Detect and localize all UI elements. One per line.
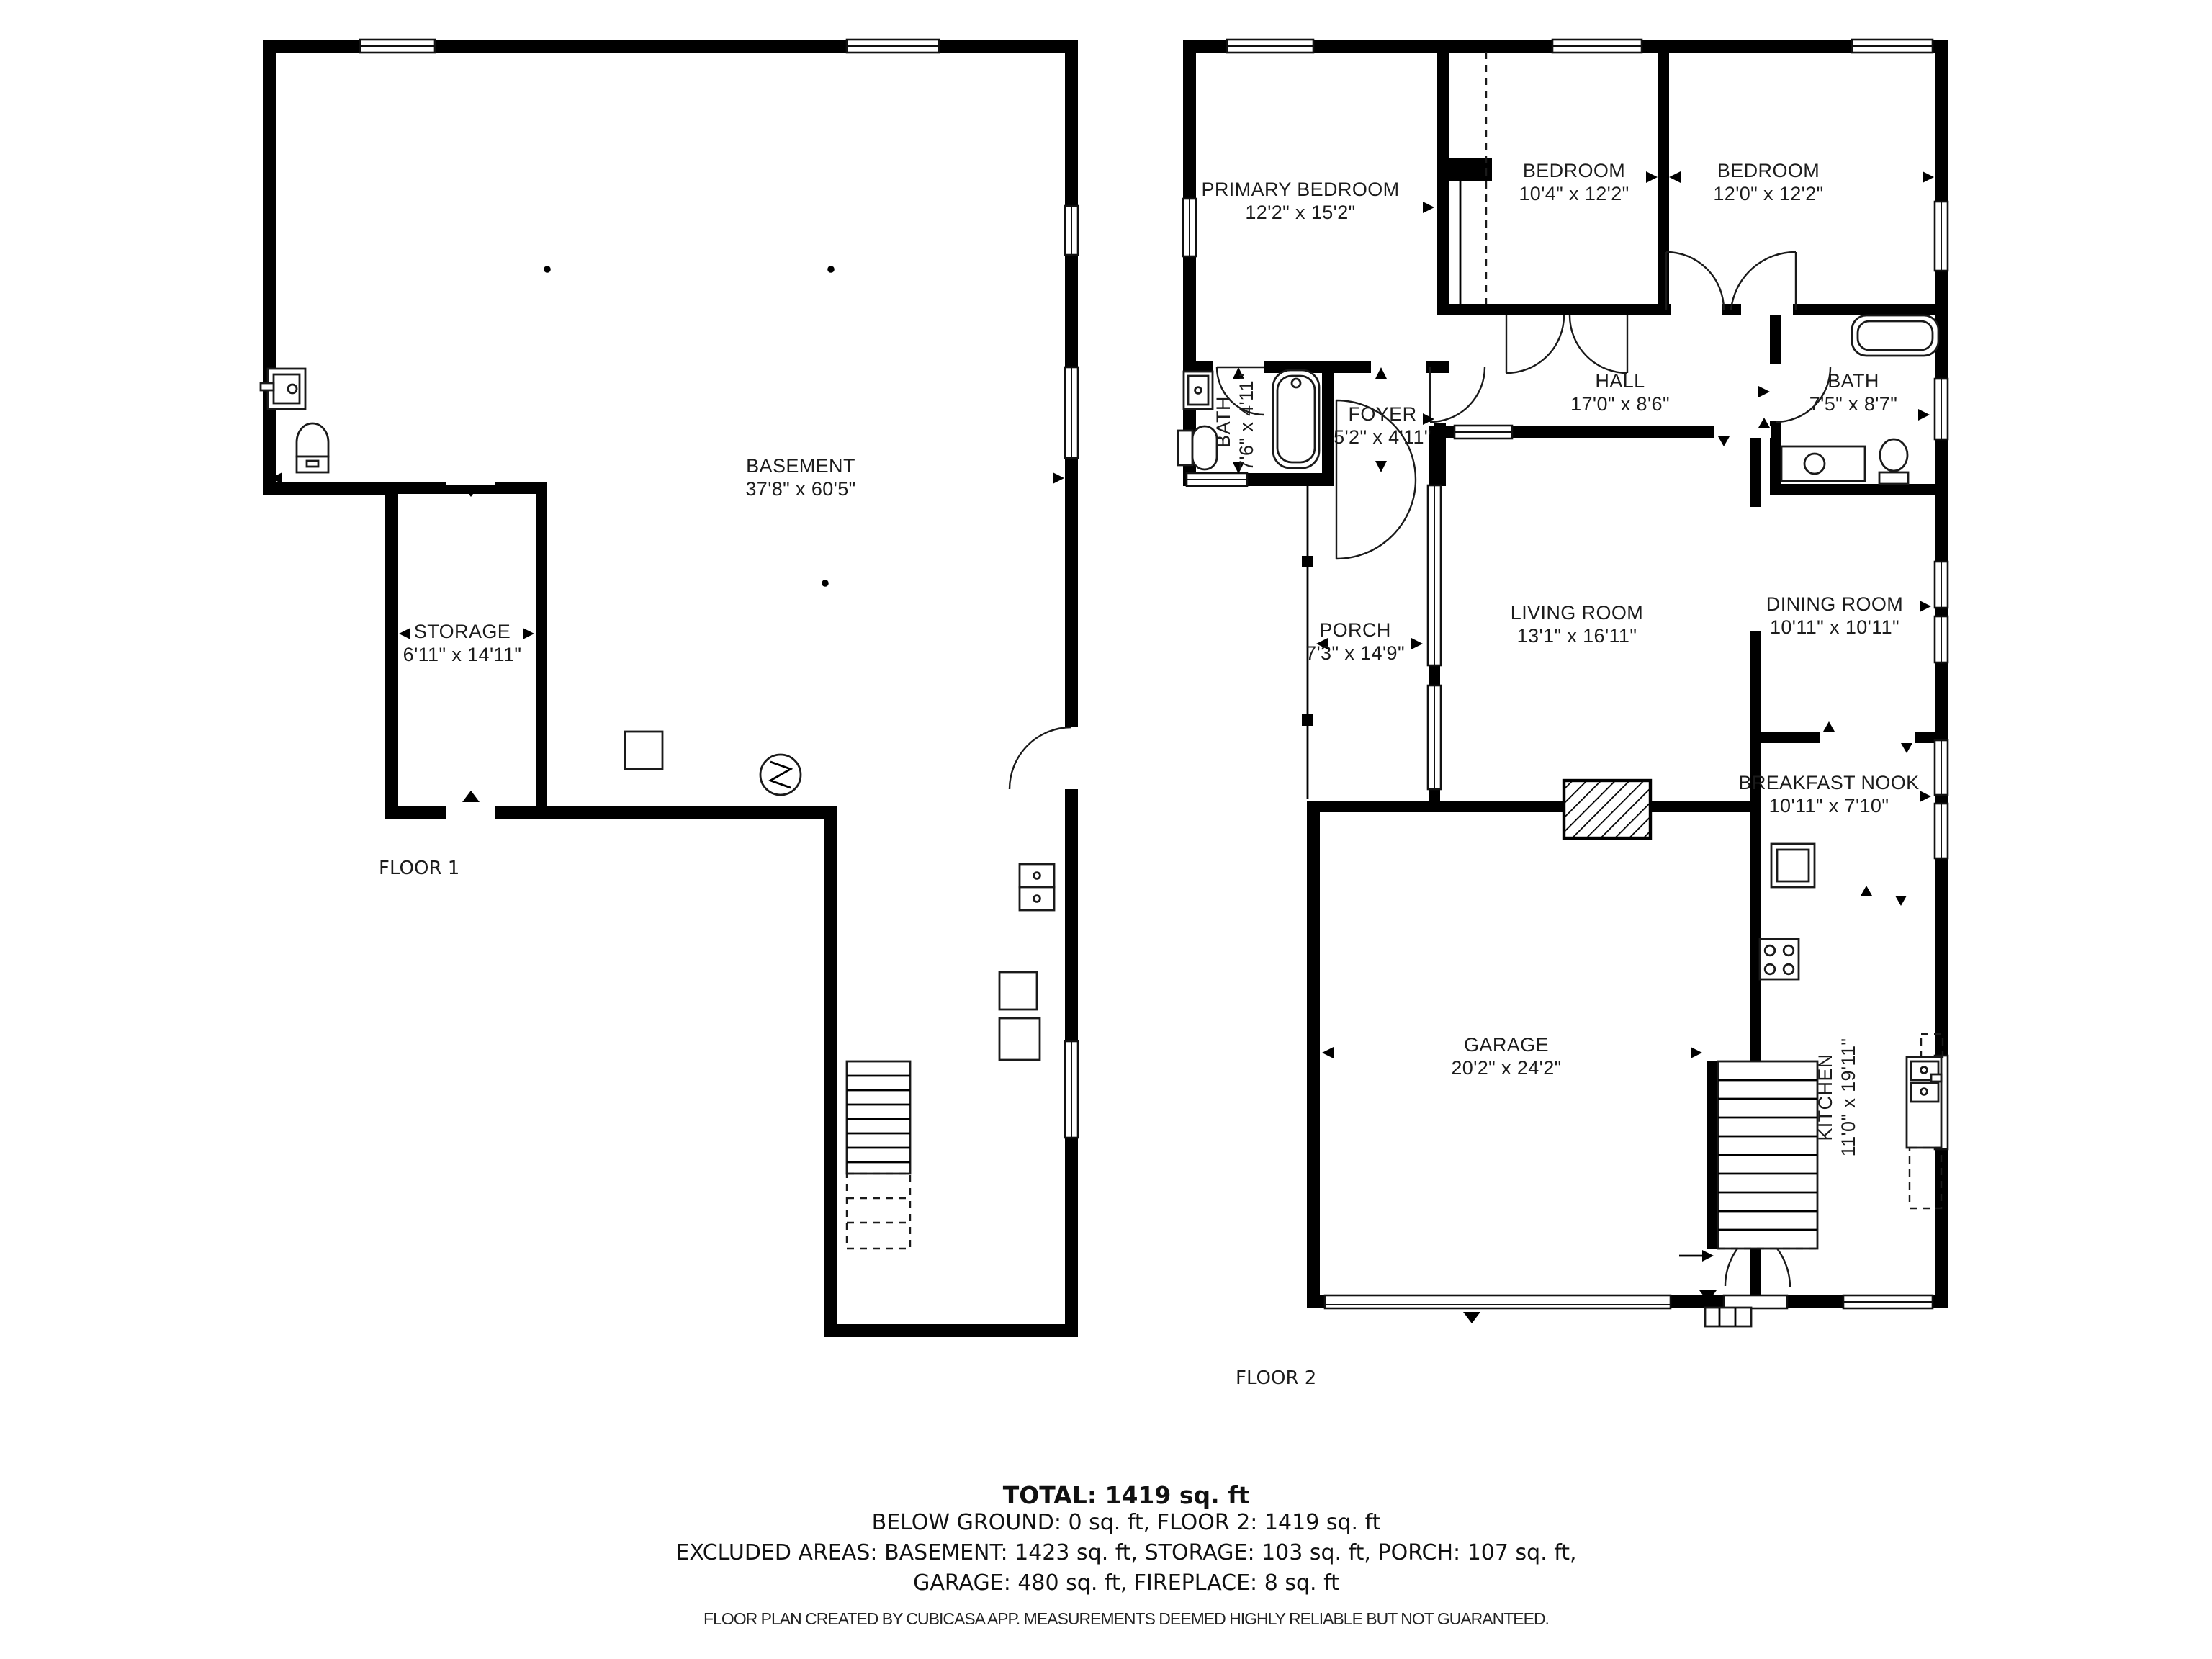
room-dims-bath-left: 7'6" x 4'11" xyxy=(1236,373,1257,471)
floor2-plan: PRIMARY BEDROOM 12'2" x 15'2" BEDROOM 10… xyxy=(1178,40,1948,1389)
room-label-bedroom-1: BEDROOM xyxy=(1523,160,1625,181)
storage-dim-arrow-right xyxy=(523,628,534,639)
room-dims-porch: 7'3" x 14'9" xyxy=(1305,642,1405,664)
dryer xyxy=(999,1018,1040,1060)
basement-water-heater xyxy=(760,755,801,795)
floor1-windows xyxy=(360,40,1078,1138)
footer-disclaimer: FLOOR PLAN CREATED BY CUBICASA APP. MEAS… xyxy=(703,1609,1549,1628)
room-label-foyer: FOYER xyxy=(1348,403,1416,425)
room-dims-primary-bedroom: 12'2" x 15'2" xyxy=(1245,202,1355,223)
room-label-breakfast-nook: BREAKFAST NOOK xyxy=(1738,772,1919,793)
room-dims-dining-room: 10'11" x 10'11" xyxy=(1770,616,1899,638)
room-label-storage: STORAGE xyxy=(414,621,511,642)
room-label-basement: BASEMENT xyxy=(746,455,855,477)
porch-post xyxy=(1302,556,1313,567)
basement-sink xyxy=(261,369,305,409)
room-dims-garage: 20'2" x 24'2" xyxy=(1451,1057,1561,1079)
room-label-porch: PORCH xyxy=(1319,619,1391,641)
washer xyxy=(999,972,1037,1010)
room-dims-breakfast-nook: 10'11" x 7'10" xyxy=(1769,795,1889,817)
storage-door-arrow-bottom xyxy=(462,791,480,802)
room-label-bedroom-2: BEDROOM xyxy=(1717,160,1820,181)
room-label-living-room: LIVING ROOM xyxy=(1511,602,1643,624)
floorplan-page: BASEMENT 37'8" x 60'5" STORAGE 6'11" x 1… xyxy=(0,0,2212,1659)
storage-door-gap-top xyxy=(446,472,495,485)
basement-equipment-box xyxy=(625,732,662,769)
room-dims-kitchen: 11'0" x 19'11" xyxy=(1838,1038,1859,1157)
porch-post xyxy=(1302,714,1313,726)
room-label-primary-bedroom: PRIMARY BEDROOM xyxy=(1201,179,1399,200)
storage-dim-arrow-left xyxy=(399,628,410,639)
room-label-bath-left: BATH xyxy=(1213,396,1234,448)
room-dims-storage: 6'11" x 14'11" xyxy=(403,644,522,665)
room-dims-foyer: 5'2" x 4'11" xyxy=(1334,426,1431,448)
floorplan-drawing: BASEMENT 37'8" x 60'5" STORAGE 6'11" x 1… xyxy=(0,0,2212,1659)
summary-total: TOTAL: 1419 sq. ft xyxy=(1003,1481,1250,1509)
room-dims-basement: 37'8" x 60'5" xyxy=(745,478,855,500)
basement-door-gap xyxy=(1065,727,1078,789)
room-label-dining-room: DINING ROOM xyxy=(1766,593,1903,615)
basement-door-arc xyxy=(1010,727,1071,789)
summary-line3: EXCLUDED AREAS: BASEMENT: 1423 sq. ft, S… xyxy=(675,1540,1576,1565)
room-label-hall: HALL xyxy=(1595,370,1645,392)
area-summary: TOTAL: 1419 sq. ft BELOW GROUND: 0 sq. f… xyxy=(675,1481,1576,1628)
floor2-label: FLOOR 2 xyxy=(1236,1367,1316,1389)
room-dims-bath-right: 7'5" x 8'7" xyxy=(1809,393,1897,415)
basement-toilet xyxy=(297,423,328,472)
room-dims-living-room: 13'1" x 16'11" xyxy=(1517,625,1637,647)
room-dims-bedroom-2: 12'0" x 12'2" xyxy=(1713,183,1823,204)
room-label-bath-right: BATH xyxy=(1827,370,1879,392)
floor1-label: FLOOR 1 xyxy=(379,858,459,879)
room-dims-hall: 17'0" x 8'6" xyxy=(1570,393,1670,415)
room-dims-bedroom-1: 10'4" x 12'2" xyxy=(1519,183,1629,204)
support-post xyxy=(827,266,835,273)
support-post xyxy=(544,266,551,273)
basement-stairs xyxy=(847,1061,910,1249)
room-label-kitchen: KITCHEN xyxy=(1815,1053,1836,1141)
floor1-plan: BASEMENT 37'8" x 60'5" STORAGE 6'11" x 1… xyxy=(261,40,1078,1331)
floor1-outer-wall xyxy=(269,46,1071,1331)
support-post xyxy=(822,580,829,587)
fireplace xyxy=(1564,781,1650,838)
summary-line4: GARAGE: 480 sq. ft, FIREPLACE: 8 sq. ft xyxy=(913,1570,1339,1596)
room-label-garage: GARAGE xyxy=(1464,1034,1549,1056)
summary-line2: BELOW GROUND: 0 sq. ft, FLOOR 2: 1419 sq… xyxy=(872,1510,1381,1535)
garage-door xyxy=(1325,1295,1671,1323)
storage-door-gap-bottom xyxy=(446,806,495,819)
basement-laundry-sink xyxy=(1020,864,1054,910)
basement-dim-arrow-right xyxy=(1053,472,1064,484)
